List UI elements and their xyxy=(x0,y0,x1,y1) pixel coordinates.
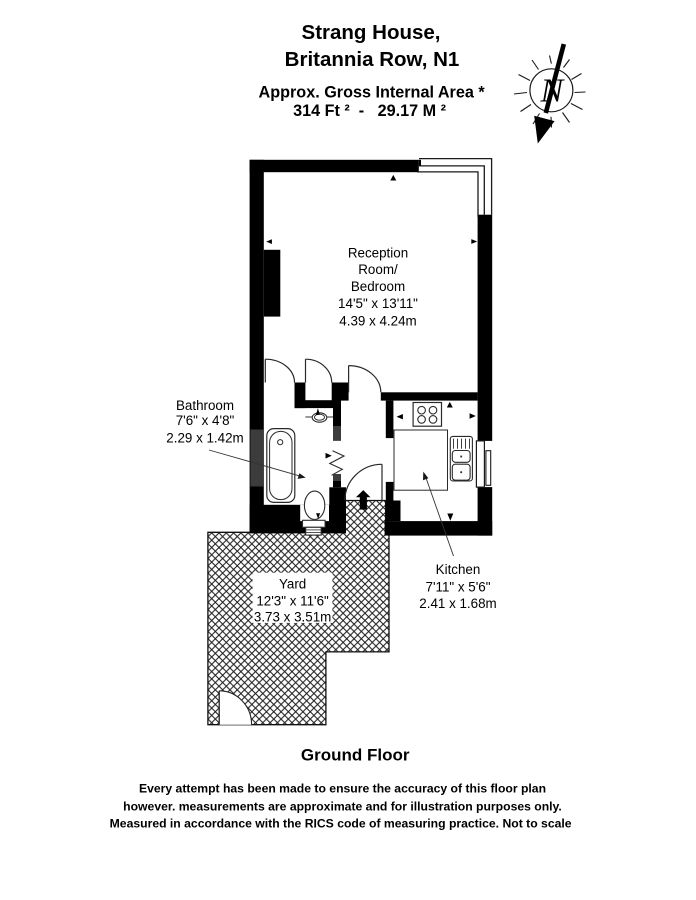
svg-text:Approx. Gross Internal Area *: Approx. Gross Internal Area * xyxy=(259,83,486,101)
svg-text:4.39 x 4.24m: 4.39 x 4.24m xyxy=(339,313,416,328)
svg-text:Measured in accordance with th: Measured in accordance with the RICS cod… xyxy=(110,817,572,831)
svg-text:314 Ft ² - 29.17 M ²: 314 Ft ² - 29.17 M ² xyxy=(293,102,447,120)
svg-text:Room/: Room/ xyxy=(358,262,398,277)
svg-text:Strang House,: Strang House, xyxy=(302,21,441,44)
svg-text:14'5" x 13'11": 14'5" x 13'11" xyxy=(338,296,418,311)
svg-text:3.73 x 3.51m: 3.73 x 3.51m xyxy=(254,610,331,625)
svg-text:2.41 x 1.68m: 2.41 x 1.68m xyxy=(419,596,496,611)
svg-text:Britannia Row, N1: Britannia Row, N1 xyxy=(285,48,460,71)
svg-text:12'3" x 11'6": 12'3" x 11'6" xyxy=(256,594,329,609)
svg-text:Reception: Reception xyxy=(348,245,408,260)
svg-text:7'6" x 4'8": 7'6" x 4'8" xyxy=(176,413,235,428)
svg-text:Yard: Yard xyxy=(279,577,306,592)
svg-text:Every attempt has been made to: Every attempt has been made to ensure th… xyxy=(139,782,546,796)
svg-text:Kitchen: Kitchen xyxy=(436,562,481,577)
svg-text:7'11" x 5'6": 7'11" x 5'6" xyxy=(426,579,491,594)
svg-text:however. measurements are appr: however. measurements are approximate an… xyxy=(123,799,562,813)
svg-text:Ground Floor: Ground Floor xyxy=(301,746,410,765)
svg-text:Bedroom: Bedroom xyxy=(351,279,405,294)
svg-text:2.29 x 1.42m: 2.29 x 1.42m xyxy=(166,430,243,445)
svg-text:Bathroom: Bathroom xyxy=(176,398,234,413)
